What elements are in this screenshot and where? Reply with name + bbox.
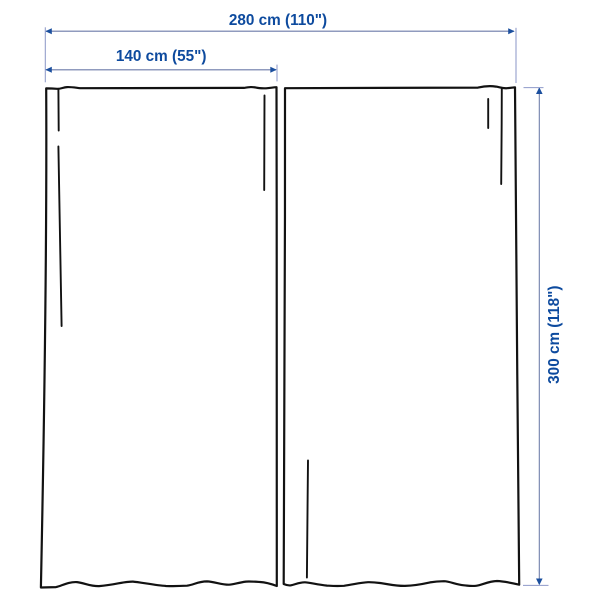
svg-text:300 cm (118"): 300 cm (118") (546, 286, 563, 384)
svg-text:280 cm (110"): 280 cm (110") (229, 12, 327, 29)
svg-text:140 cm (55"): 140 cm (55") (116, 48, 207, 65)
